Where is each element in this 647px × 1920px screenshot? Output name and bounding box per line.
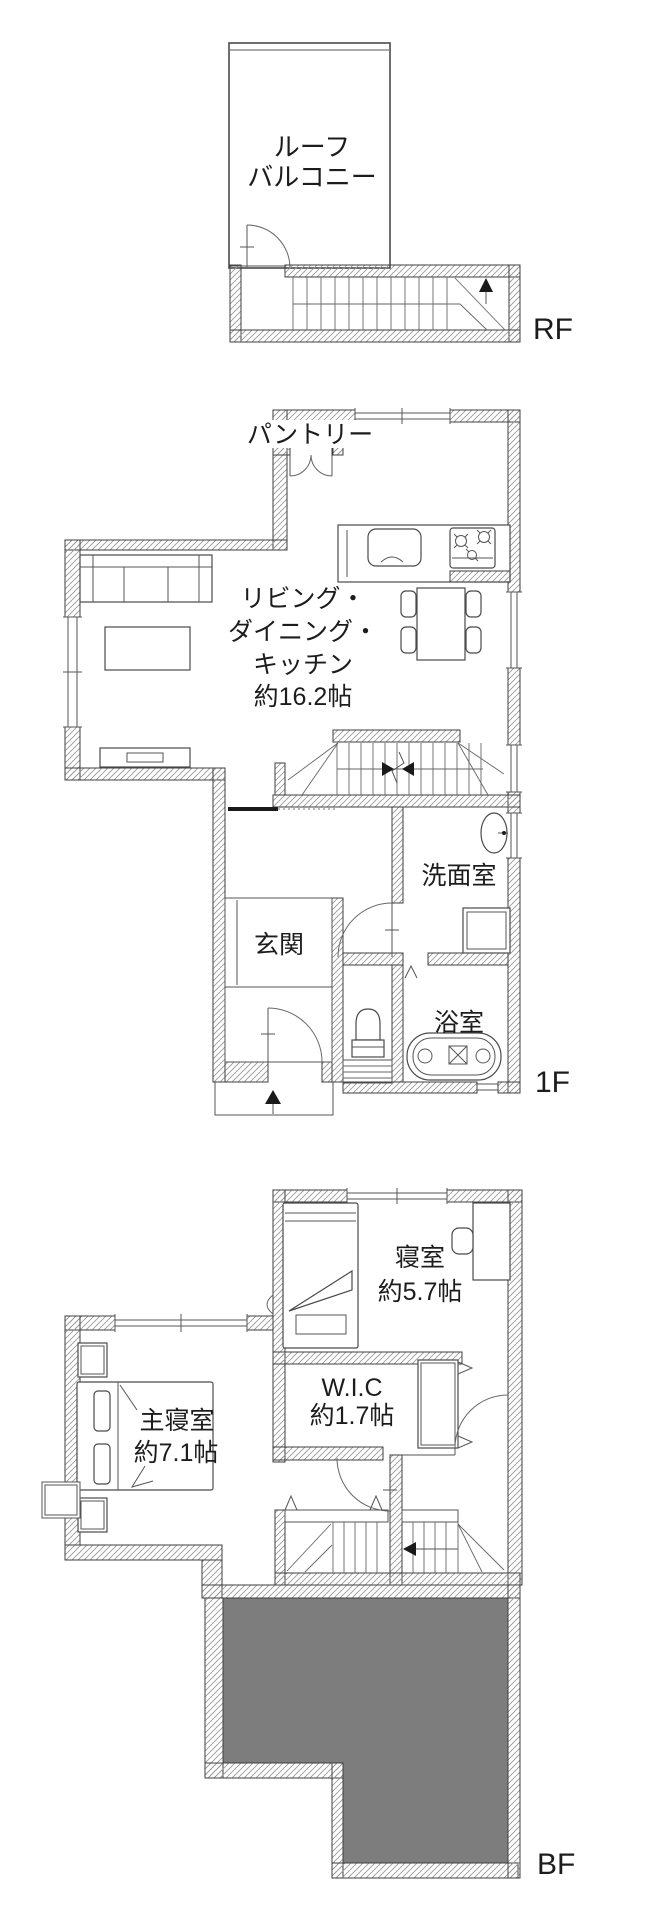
room-label-ldk-3: キッチン <box>253 651 353 679</box>
washing-machine-pan <box>463 908 510 953</box>
room-label-wic-size: 約1.7帖 <box>310 1402 395 1430</box>
nightstand <box>78 1343 107 1377</box>
room-label-ldk-2: ダイニング・ <box>228 618 378 646</box>
floor-plan-page: ルーフ バルコニー <box>0 0 647 1920</box>
window-well <box>42 1482 80 1518</box>
bath-door-mark <box>405 966 417 978</box>
room-label-pantry: パントリー <box>247 421 373 449</box>
kitchen-counter <box>338 525 510 582</box>
bathtub-icon <box>407 1033 501 1080</box>
floor-label-bf: BF <box>537 1848 575 1881</box>
sofa <box>80 555 212 602</box>
floor-rf: ルーフ バルコニー <box>229 43 573 346</box>
closet <box>418 1360 472 1448</box>
hall-counter-line <box>228 807 278 811</box>
floor-bf: 寝室 約5.7帖 W.I.C 約1.7帖 主寝室 約7.1帖 BF <box>42 1188 575 1881</box>
kitchen-sink-icon <box>368 529 421 566</box>
entrance-door-arc <box>261 1008 322 1062</box>
room-label-wic: W.I.C <box>321 1374 382 1402</box>
desk-chair <box>452 1228 473 1254</box>
floor-1f: パントリー リビング・ ダイニング・ キッチン 約16.2帖 玄関 洗面室 浴室… <box>63 408 570 1115</box>
porch <box>215 1082 333 1115</box>
gray-area <box>223 1598 508 1863</box>
coffee-table <box>105 627 190 670</box>
room-label-master-bedroom-size: 約7.1帖 <box>134 1439 219 1467</box>
toilet-steps <box>343 1060 392 1083</box>
roof-balcony: ルーフ バルコニー <box>229 43 390 268</box>
room-label-ldk-1: リビング・ <box>240 585 365 613</box>
floor-label-rf: RF <box>533 313 573 346</box>
chair <box>466 591 481 617</box>
room-label-roof-balcony-2: バルコニー <box>247 162 376 192</box>
room-label-bedroom-size: 約5.7帖 <box>378 1278 463 1306</box>
floor-plan-svg: ルーフ バルコニー <box>0 0 647 1920</box>
room-label-ldk-4: 約16.2帖 <box>254 683 353 711</box>
chair <box>401 627 416 653</box>
stair-direction-arrow-rf <box>479 278 493 304</box>
pantry-double-door <box>290 455 332 476</box>
stairs-rf <box>230 265 520 342</box>
toilet-icon <box>352 1009 384 1057</box>
door-mark <box>285 1496 297 1510</box>
room-label-bathroom: 浴室 <box>434 1009 484 1037</box>
single-bed <box>283 1203 358 1348</box>
bf-hall-door-arc <box>337 1458 397 1511</box>
double-bed <box>77 1382 213 1490</box>
floor-label-1f: 1F <box>535 1066 570 1099</box>
room-label-bedroom: 寝室 <box>395 1244 445 1272</box>
stairs-1f <box>288 743 504 795</box>
entrance-hall <box>225 898 332 1062</box>
chair <box>466 627 481 653</box>
wall-bump <box>267 1295 273 1314</box>
washbasin-icon <box>481 813 508 853</box>
room-label-roof-balcony-1: ルーフ <box>274 132 350 162</box>
entry-arrow <box>265 1090 281 1114</box>
hall-door-arc <box>338 903 399 957</box>
room-label-master-bedroom: 主寝室 <box>139 1407 214 1435</box>
tv-board <box>100 748 190 767</box>
dining-table <box>401 588 481 660</box>
desk <box>473 1203 510 1280</box>
stair-direction-arrow-bf <box>403 1542 458 1556</box>
room-label-washroom: 洗面室 <box>421 862 496 890</box>
room-label-entrance: 玄関 <box>254 931 304 959</box>
nightstand <box>78 1498 107 1532</box>
chair <box>401 591 416 617</box>
stove-icon <box>450 528 495 568</box>
